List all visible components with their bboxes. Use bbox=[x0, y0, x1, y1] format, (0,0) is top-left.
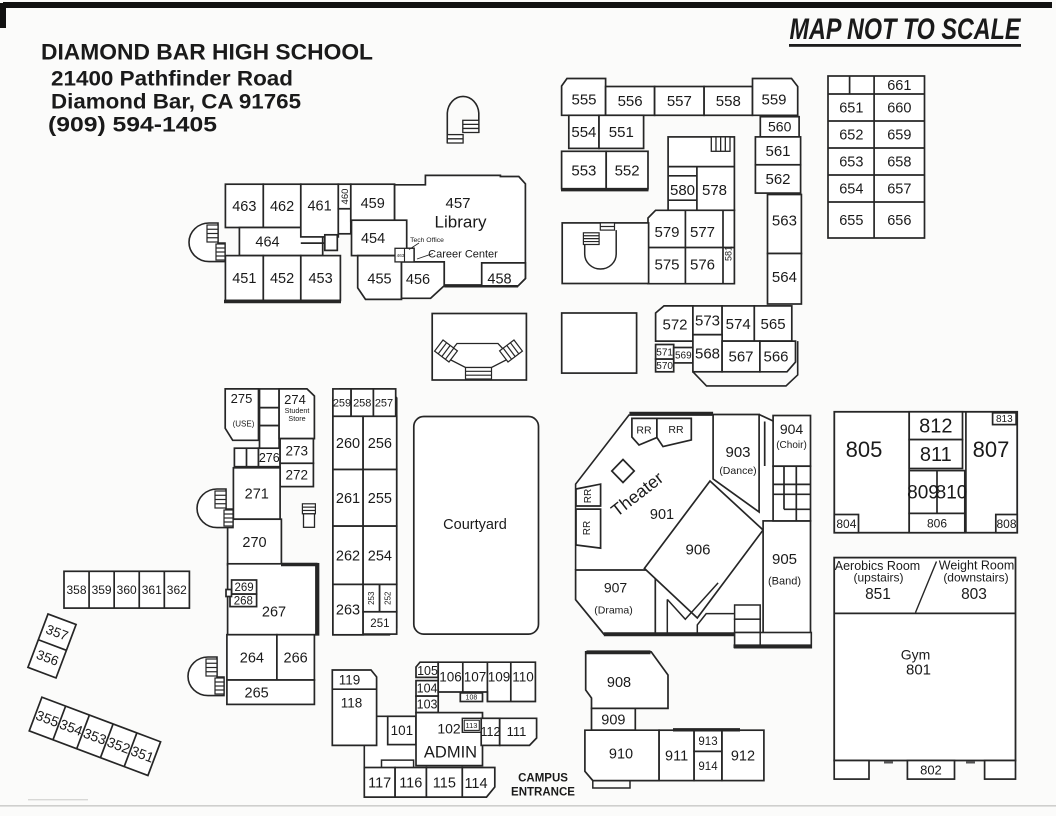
svg-text:807: 807 bbox=[973, 437, 1010, 462]
svg-text:573: 573 bbox=[695, 313, 720, 330]
svg-text:907: 907 bbox=[604, 579, 628, 595]
svg-text:270: 270 bbox=[242, 535, 266, 551]
svg-text:Diamond Bar, CA 91765: Diamond Bar, CA 91765 bbox=[51, 90, 301, 113]
svg-text:909: 909 bbox=[601, 712, 625, 728]
svg-text:103: 103 bbox=[417, 698, 438, 712]
svg-text:562: 562 bbox=[765, 171, 790, 188]
svg-text:811: 811 bbox=[920, 444, 952, 466]
svg-text:110: 110 bbox=[512, 670, 534, 685]
svg-text:254: 254 bbox=[368, 548, 392, 564]
svg-text:657: 657 bbox=[887, 182, 911, 198]
svg-text:257: 257 bbox=[375, 397, 393, 409]
svg-text:566: 566 bbox=[763, 348, 788, 365]
svg-text:112: 112 bbox=[480, 725, 500, 739]
svg-text:21400 Pathfinder Road: 21400 Pathfinder Road bbox=[51, 67, 293, 90]
svg-text:269: 269 bbox=[235, 582, 254, 594]
svg-text:808: 808 bbox=[996, 517, 1016, 531]
svg-text:276: 276 bbox=[259, 451, 280, 465]
svg-text:(Drama): (Drama) bbox=[594, 605, 633, 617]
svg-text:565: 565 bbox=[761, 316, 786, 333]
svg-text:113: 113 bbox=[466, 721, 478, 730]
svg-text:CAMPUS: CAMPUS bbox=[518, 773, 568, 785]
svg-text:803: 803 bbox=[961, 586, 987, 603]
svg-text:904: 904 bbox=[780, 421, 804, 437]
svg-text:661: 661 bbox=[887, 78, 911, 94]
svg-text:463: 463 bbox=[397, 253, 405, 258]
svg-text:804: 804 bbox=[836, 517, 856, 531]
svg-text:261: 261 bbox=[336, 491, 360, 507]
svg-text:274: 274 bbox=[284, 392, 306, 407]
svg-text:451: 451 bbox=[232, 271, 256, 287]
svg-text:558: 558 bbox=[716, 93, 741, 110]
svg-text:(USE): (USE) bbox=[233, 419, 255, 428]
svg-text:275: 275 bbox=[231, 391, 253, 406]
svg-text:910: 910 bbox=[609, 747, 633, 763]
svg-text:581: 581 bbox=[724, 246, 734, 261]
svg-text:118: 118 bbox=[341, 696, 363, 711]
svg-text:810: 810 bbox=[936, 483, 968, 504]
svg-text:266: 266 bbox=[284, 650, 308, 666]
svg-text:911: 911 bbox=[665, 748, 688, 764]
svg-text:812: 812 bbox=[919, 416, 952, 438]
svg-text:908: 908 bbox=[607, 675, 631, 691]
svg-text:358: 358 bbox=[66, 583, 86, 597]
svg-text:905: 905 bbox=[772, 551, 797, 568]
svg-text:252: 252 bbox=[384, 591, 393, 605]
svg-text:359: 359 bbox=[92, 583, 112, 597]
svg-text:264: 264 bbox=[240, 650, 264, 666]
svg-text:258: 258 bbox=[353, 397, 371, 409]
svg-text:656: 656 bbox=[887, 213, 911, 229]
svg-text:(Dance): (Dance) bbox=[719, 465, 756, 477]
svg-text:458: 458 bbox=[487, 272, 511, 288]
svg-text:267: 267 bbox=[262, 605, 286, 621]
svg-text:655: 655 bbox=[839, 213, 863, 229]
svg-text:851: 851 bbox=[865, 586, 891, 603]
svg-text:104: 104 bbox=[417, 682, 438, 696]
svg-text:361: 361 bbox=[142, 583, 162, 597]
svg-text:RR: RR bbox=[636, 425, 652, 437]
svg-text:575: 575 bbox=[654, 256, 679, 273]
svg-text:564: 564 bbox=[772, 269, 797, 286]
svg-text:913: 913 bbox=[698, 736, 717, 748]
svg-text:571: 571 bbox=[656, 347, 673, 358]
svg-text:RR: RR bbox=[668, 424, 684, 436]
svg-text:Store: Store bbox=[288, 414, 305, 423]
svg-text:556: 556 bbox=[618, 93, 643, 110]
svg-text:576: 576 bbox=[690, 256, 715, 273]
svg-text:901: 901 bbox=[650, 507, 674, 523]
svg-text:256: 256 bbox=[368, 436, 392, 452]
svg-text:559: 559 bbox=[761, 91, 786, 108]
svg-text:ADMIN: ADMIN bbox=[424, 743, 477, 761]
svg-text:111: 111 bbox=[507, 724, 527, 739]
svg-text:117: 117 bbox=[368, 775, 391, 791]
svg-text:561: 561 bbox=[765, 143, 790, 160]
svg-text:459: 459 bbox=[361, 196, 385, 212]
svg-text:455: 455 bbox=[367, 272, 391, 288]
svg-text:(Band): (Band) bbox=[768, 575, 801, 587]
svg-text:RR: RR bbox=[583, 489, 594, 503]
svg-text:464: 464 bbox=[255, 235, 279, 251]
svg-text:MAP NOT TO SCALE: MAP NOT TO SCALE bbox=[790, 13, 1022, 46]
svg-text:105: 105 bbox=[417, 664, 438, 678]
svg-text:262: 262 bbox=[336, 548, 360, 564]
svg-text:651: 651 bbox=[839, 101, 863, 117]
svg-text:652: 652 bbox=[839, 128, 863, 144]
svg-text:914: 914 bbox=[698, 761, 718, 773]
svg-text:109: 109 bbox=[488, 670, 511, 685]
svg-text:106: 106 bbox=[439, 670, 462, 685]
svg-text:Career Center: Career Center bbox=[428, 248, 498, 260]
svg-text:809: 809 bbox=[907, 483, 939, 504]
svg-text:580: 580 bbox=[670, 182, 695, 199]
svg-text:452: 452 bbox=[270, 271, 294, 287]
svg-text:912: 912 bbox=[731, 748, 755, 764]
svg-text:654: 654 bbox=[839, 182, 863, 198]
svg-text:RR: RR bbox=[582, 521, 593, 535]
svg-text:906: 906 bbox=[685, 541, 710, 558]
svg-text:108: 108 bbox=[466, 695, 478, 702]
svg-text:457: 457 bbox=[445, 195, 470, 212]
svg-text:(909) 594-1405: (909) 594-1405 bbox=[48, 113, 217, 136]
svg-text:579: 579 bbox=[654, 224, 679, 241]
svg-text:569: 569 bbox=[675, 351, 692, 362]
svg-text:653: 653 bbox=[839, 155, 863, 171]
svg-text:115: 115 bbox=[433, 775, 456, 791]
svg-text:463: 463 bbox=[232, 199, 256, 215]
svg-text:801: 801 bbox=[906, 661, 931, 678]
svg-text:263: 263 bbox=[336, 603, 360, 619]
svg-text:(upstairs): (upstairs) bbox=[853, 571, 903, 585]
svg-text:461: 461 bbox=[307, 199, 331, 215]
svg-text:Library: Library bbox=[435, 212, 487, 231]
svg-text:567: 567 bbox=[728, 349, 753, 366]
svg-text:660: 660 bbox=[887, 101, 911, 117]
svg-text:119: 119 bbox=[339, 673, 361, 688]
svg-text:552: 552 bbox=[615, 162, 640, 179]
svg-text:454: 454 bbox=[361, 231, 385, 247]
svg-text:255: 255 bbox=[368, 491, 392, 507]
svg-text:260: 260 bbox=[336, 436, 360, 452]
svg-text:265: 265 bbox=[245, 685, 269, 701]
svg-text:572: 572 bbox=[662, 316, 687, 333]
svg-text:DIAMOND BAR HIGH SCHOOL: DIAMOND BAR HIGH SCHOOL bbox=[41, 40, 373, 65]
svg-text:116: 116 bbox=[399, 775, 422, 791]
svg-text:(downstairs): (downstairs) bbox=[943, 571, 1008, 585]
svg-text:251: 251 bbox=[370, 618, 389, 630]
svg-text:560: 560 bbox=[768, 119, 792, 135]
svg-text:578: 578 bbox=[702, 182, 727, 199]
svg-text:903: 903 bbox=[725, 444, 750, 461]
svg-text:102: 102 bbox=[437, 721, 461, 737]
svg-text:Tech Office: Tech Office bbox=[410, 237, 444, 244]
svg-text:(Choir): (Choir) bbox=[776, 440, 807, 451]
svg-text:557: 557 bbox=[667, 93, 692, 110]
svg-text:Gym: Gym bbox=[901, 646, 931, 662]
svg-text:273: 273 bbox=[285, 444, 308, 459]
svg-text:802: 802 bbox=[920, 762, 942, 777]
svg-text:456: 456 bbox=[406, 272, 430, 288]
svg-text:253: 253 bbox=[367, 591, 376, 605]
svg-text:271: 271 bbox=[245, 487, 269, 503]
svg-text:268: 268 bbox=[234, 595, 253, 607]
svg-text:563: 563 bbox=[772, 212, 797, 229]
svg-text:813: 813 bbox=[996, 414, 1013, 425]
svg-text:460: 460 bbox=[340, 189, 351, 205]
svg-text:ENTRANCE: ENTRANCE bbox=[511, 787, 575, 799]
svg-text:259: 259 bbox=[333, 397, 351, 409]
svg-text:658: 658 bbox=[887, 155, 911, 171]
svg-text:554: 554 bbox=[571, 124, 596, 141]
svg-text:659: 659 bbox=[887, 128, 911, 144]
svg-text:114: 114 bbox=[464, 776, 487, 792]
svg-text:551: 551 bbox=[609, 124, 634, 141]
svg-text:362: 362 bbox=[167, 583, 187, 597]
svg-text:574: 574 bbox=[726, 316, 751, 333]
svg-text:553: 553 bbox=[571, 162, 596, 179]
svg-text:107: 107 bbox=[464, 670, 487, 685]
svg-text:806: 806 bbox=[927, 516, 947, 530]
svg-text:101: 101 bbox=[391, 723, 414, 738]
svg-text:555: 555 bbox=[571, 91, 596, 108]
svg-text:453: 453 bbox=[308, 271, 332, 287]
svg-text:Courtyard: Courtyard bbox=[443, 517, 507, 533]
svg-text:577: 577 bbox=[690, 224, 715, 241]
svg-text:805: 805 bbox=[846, 437, 883, 462]
svg-text:462: 462 bbox=[270, 199, 294, 215]
svg-text:360: 360 bbox=[117, 583, 137, 597]
svg-text:568: 568 bbox=[695, 346, 720, 363]
svg-text:272: 272 bbox=[285, 468, 308, 483]
svg-text:570: 570 bbox=[656, 361, 673, 372]
